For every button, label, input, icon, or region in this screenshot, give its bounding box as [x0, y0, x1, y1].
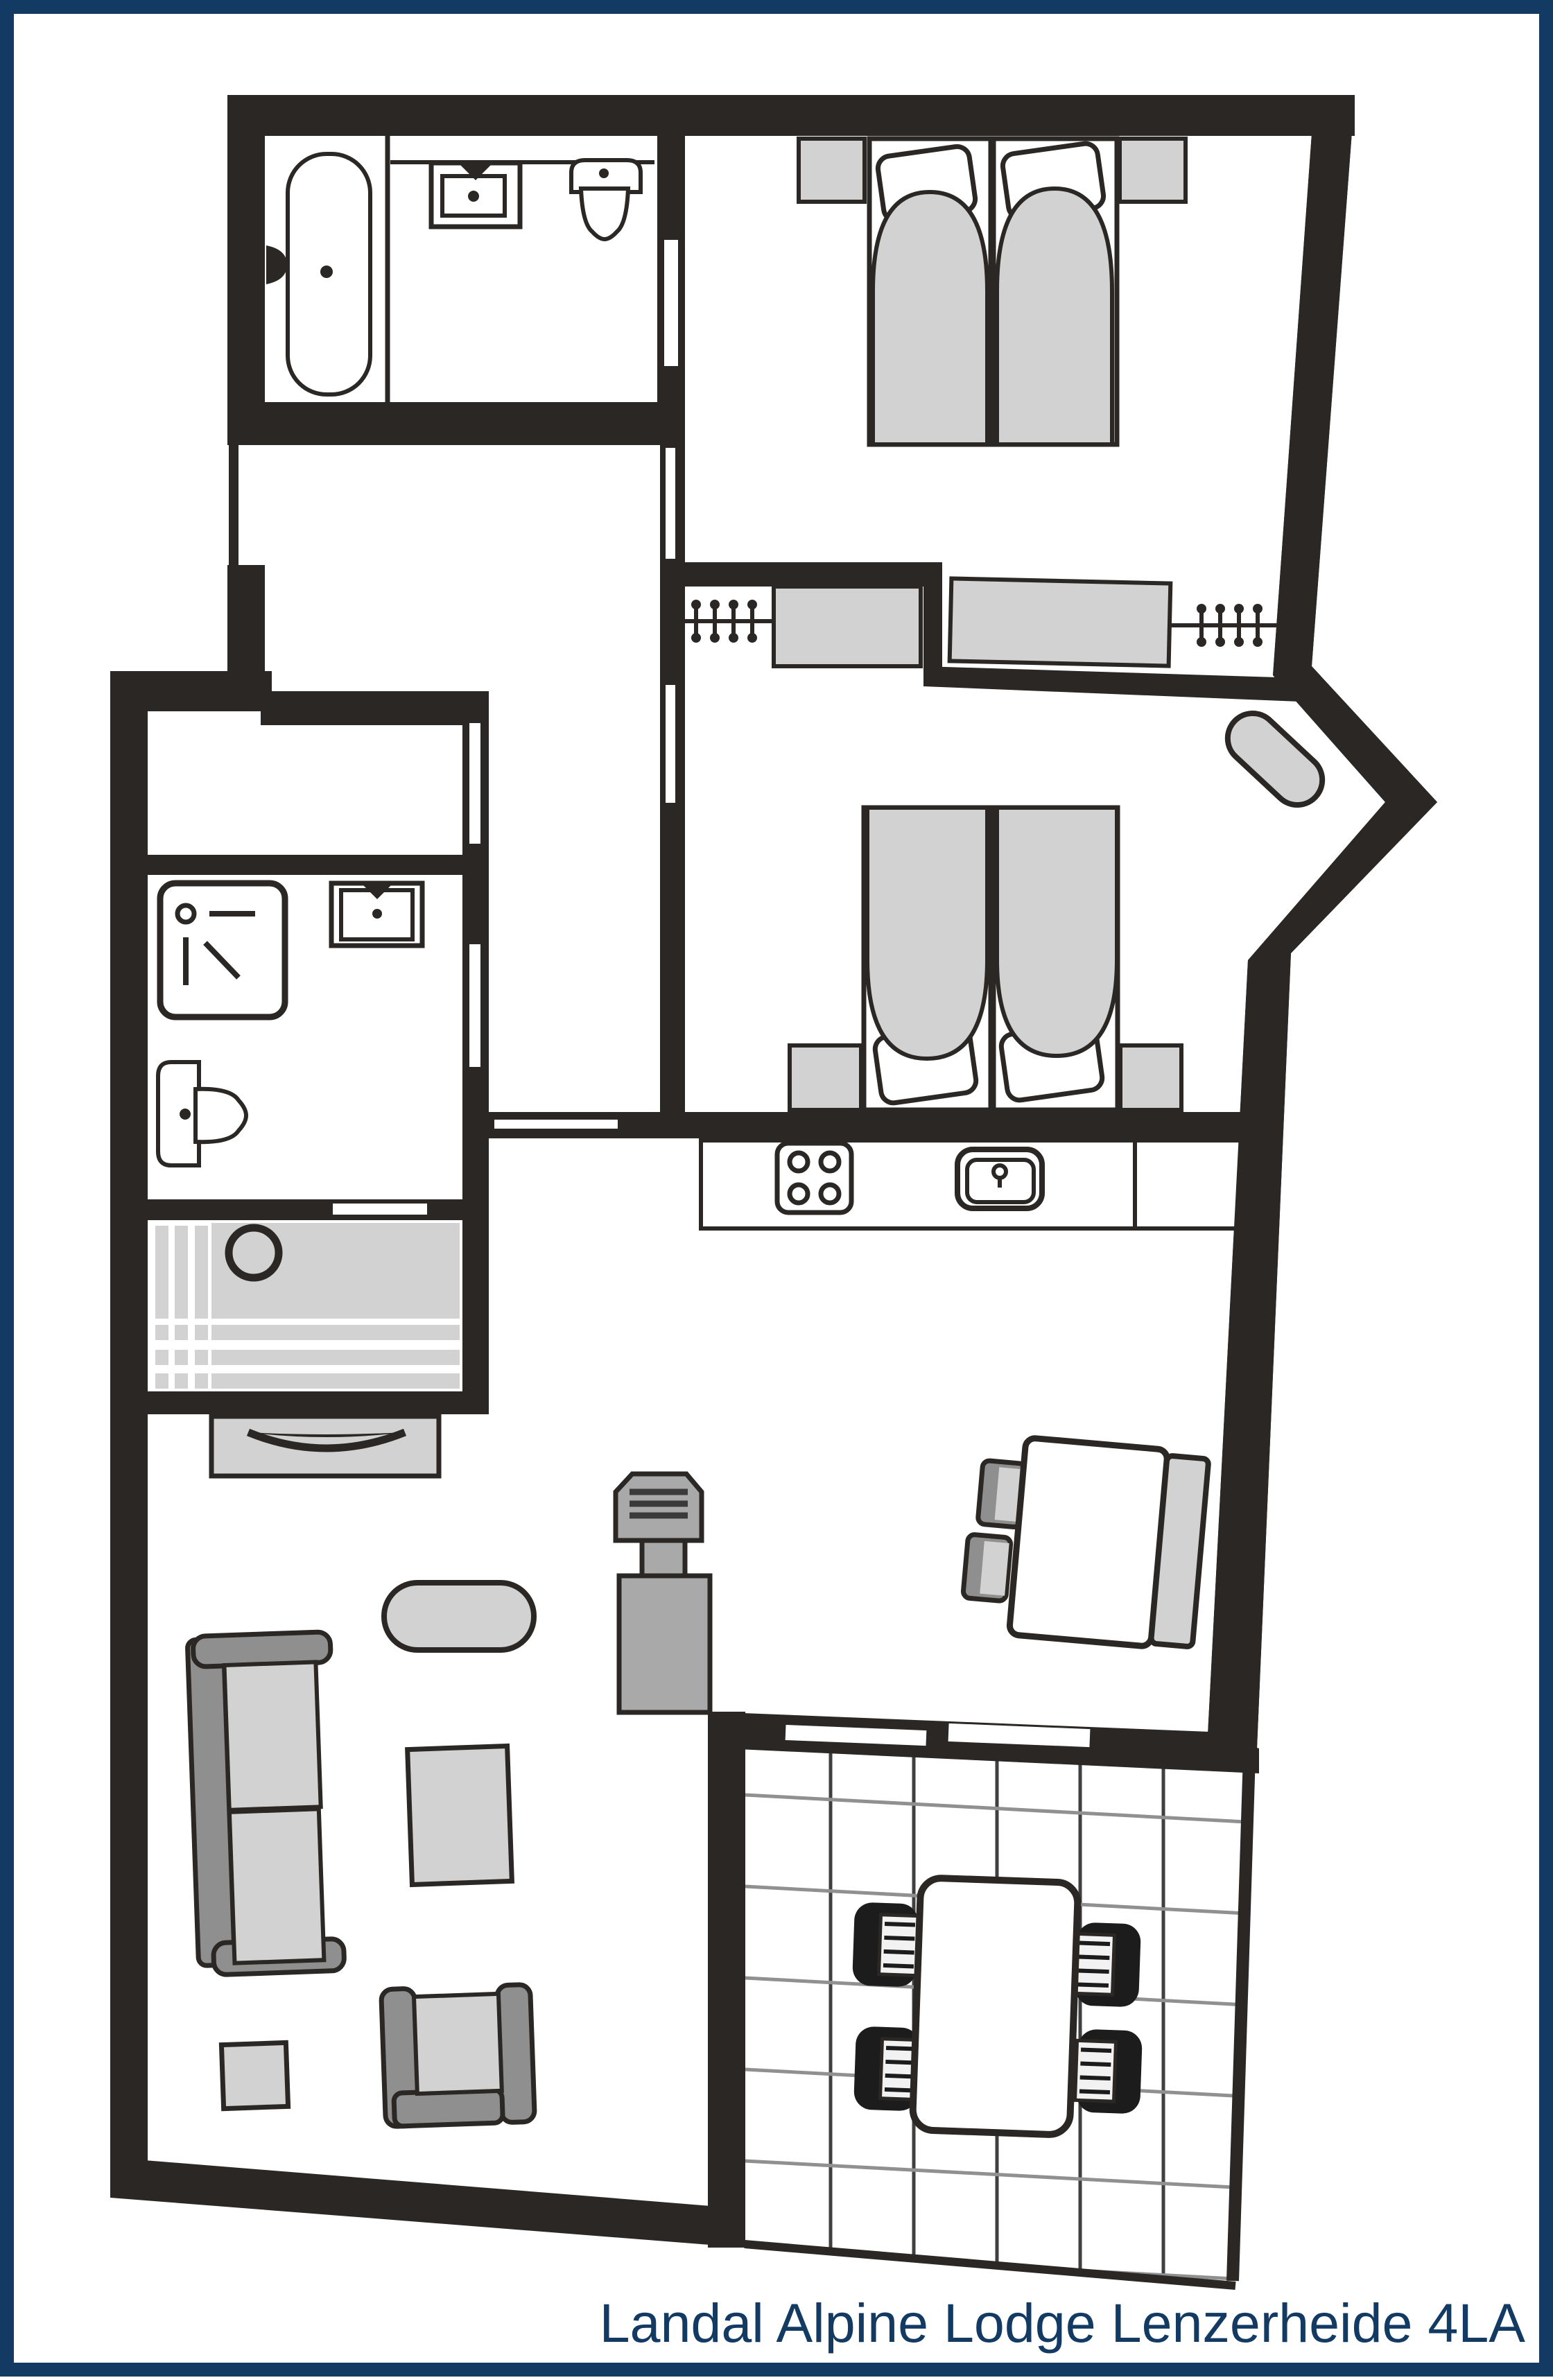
- svg-text:Landal Alpine Lodge Lenzerheid: Landal Alpine Lodge Lenzerheide 4LA: [600, 2292, 1526, 2354]
